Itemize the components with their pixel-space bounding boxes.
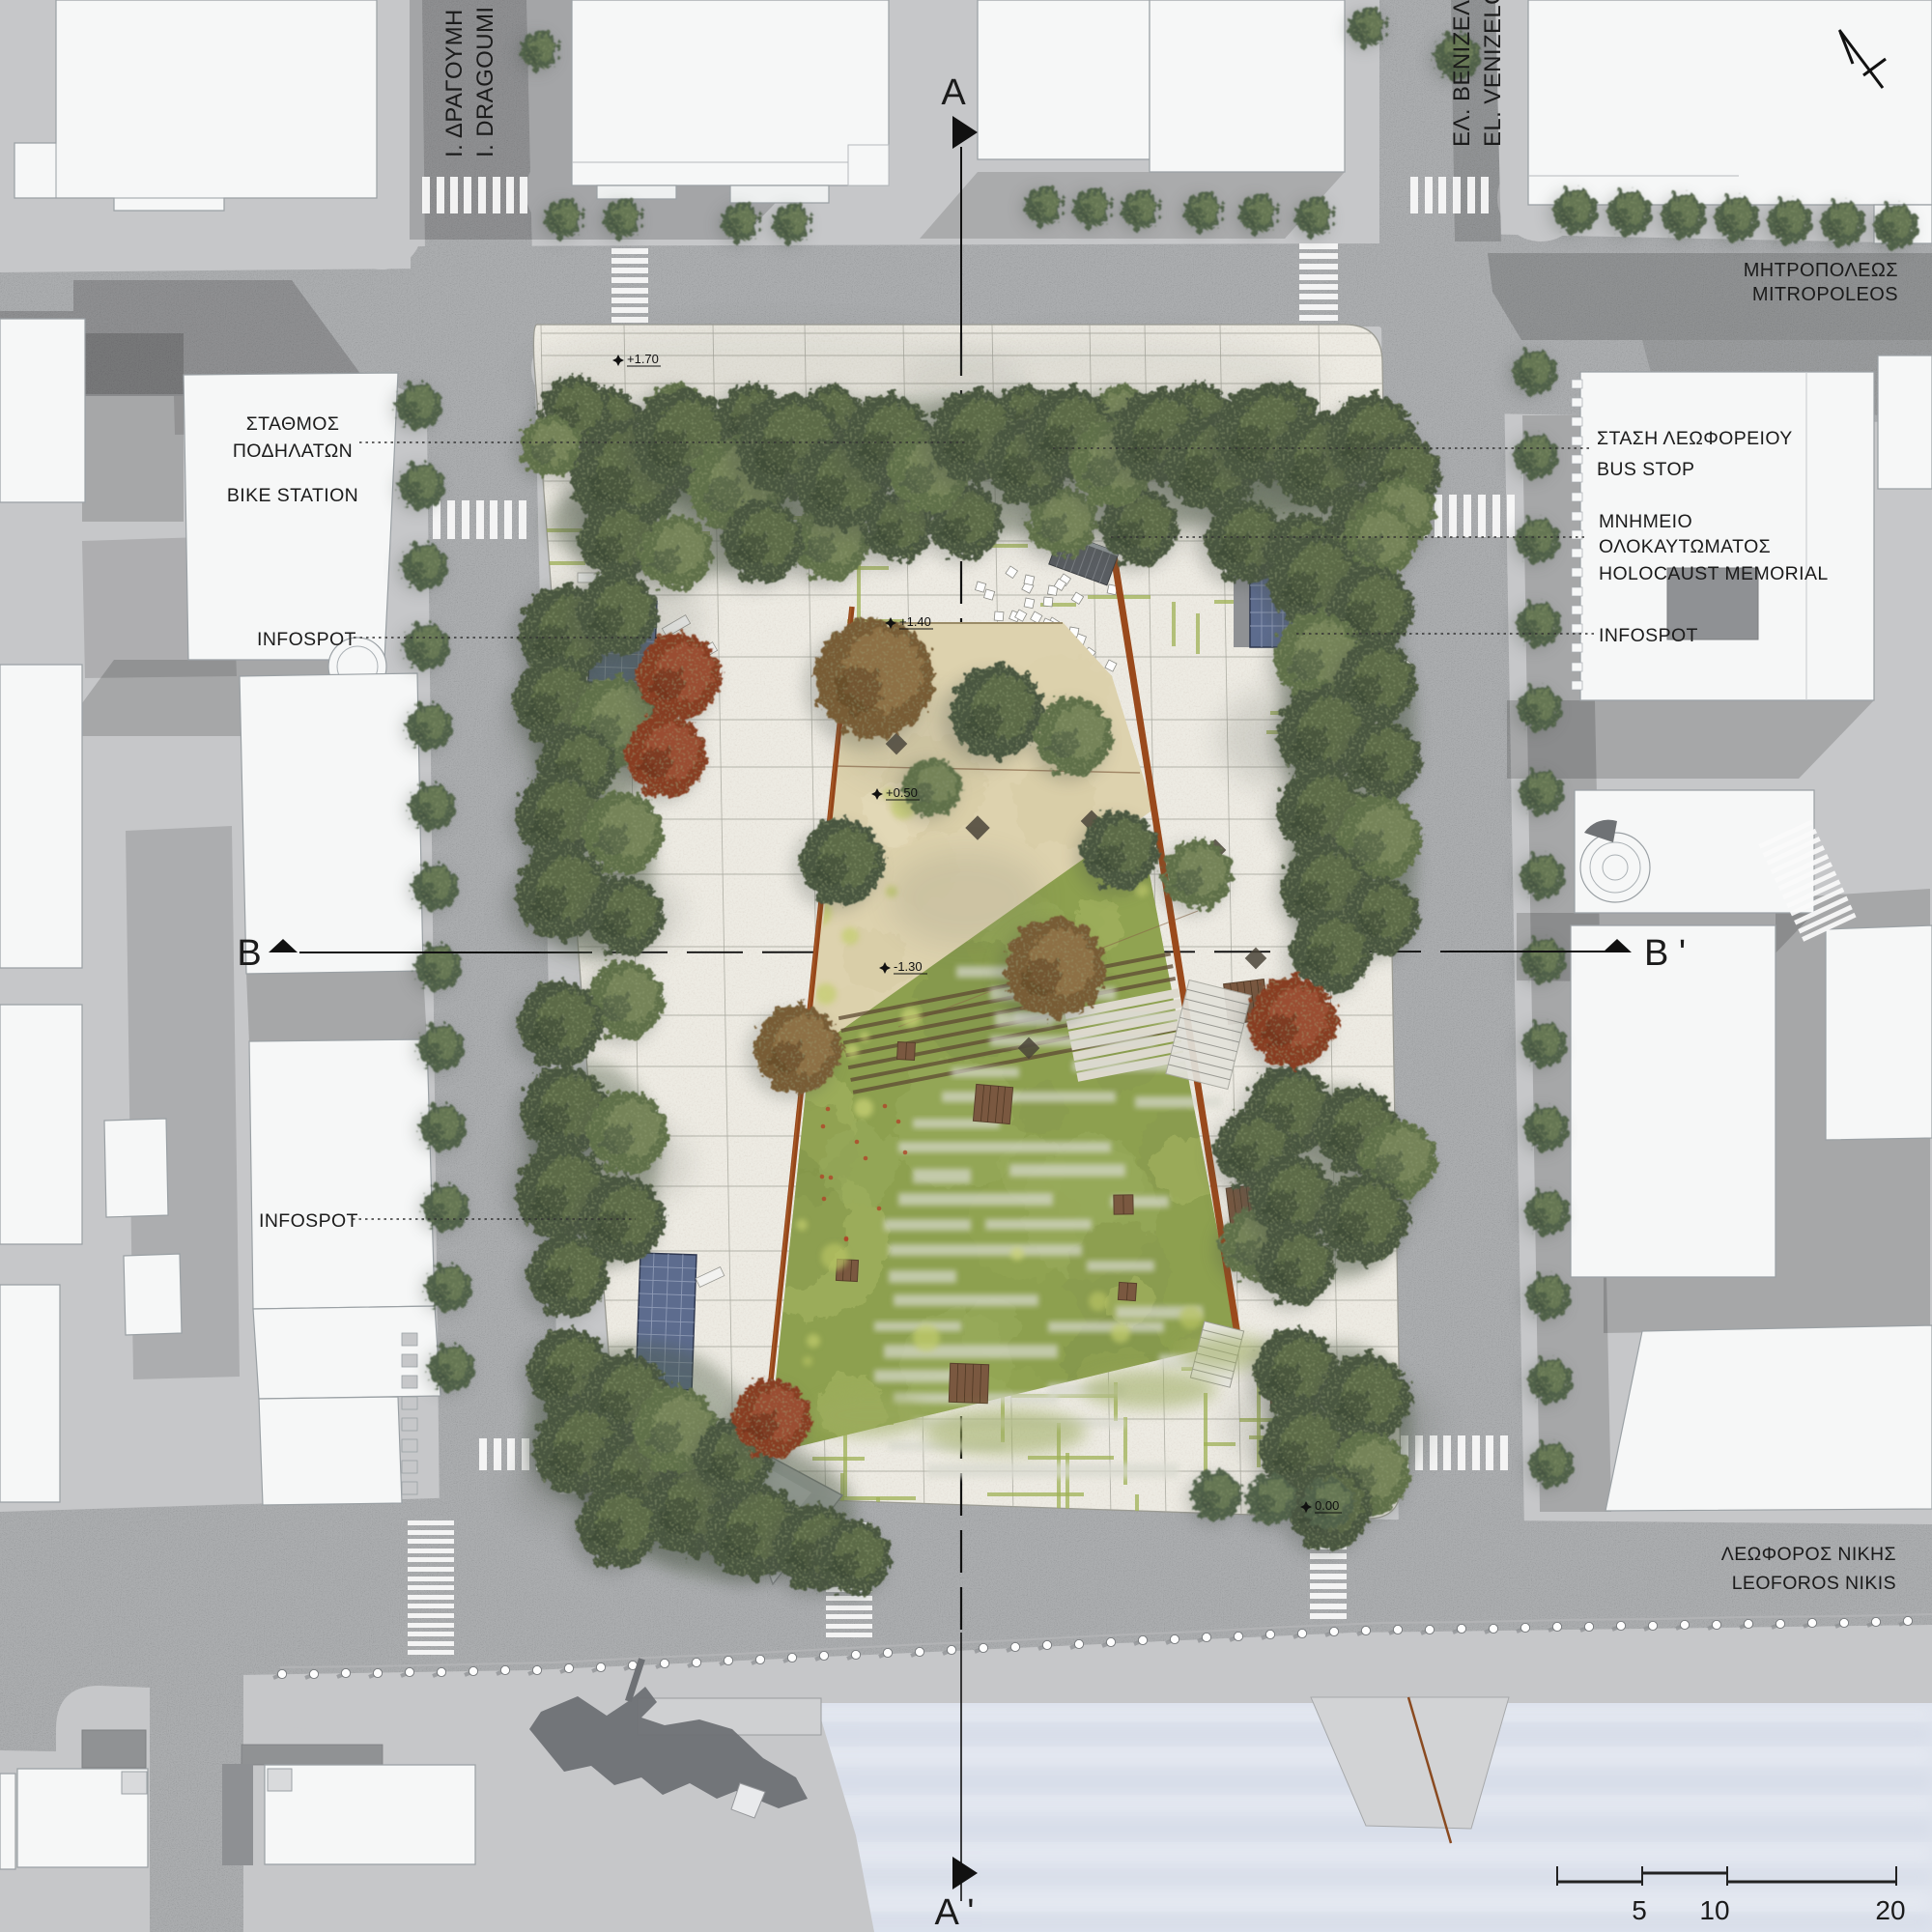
- svg-text:ΕΛ. ΒΕΝΙΖΕΛΟΥ: ΕΛ. ΒΕΝΙΖΕΛΟΥ: [1449, 0, 1475, 147]
- svg-text:ΟΛΟΚΑΥΤΩΜΑΤΟΣ: ΟΛΟΚΑΥΤΩΜΑΤΟΣ: [1599, 536, 1771, 557]
- svg-text:+0.50: +0.50: [886, 785, 918, 800]
- svg-text:ΜΗΤΡΟΠΟΛΕΩΣ: ΜΗΤΡΟΠΟΛΕΩΣ: [1744, 260, 1898, 281]
- svg-text:ΣΤΑΣΗ ΛΕΩΦΟΡΕΙΟΥ: ΣΤΑΣΗ ΛΕΩΦΟΡΕΙΟΥ: [1597, 428, 1793, 449]
- svg-text:BUS STOP: BUS STOP: [1597, 459, 1694, 480]
- svg-text:HOLOCAUST MEMORIAL: HOLOCAUST MEMORIAL: [1599, 563, 1829, 584]
- svg-text:EL. VENIZELOU: EL. VENIZELOU: [1480, 0, 1506, 147]
- svg-text:I. DRAGOUMI: I. DRAGOUMI: [472, 7, 498, 157]
- svg-text:BIKE STATION: BIKE STATION: [227, 485, 358, 506]
- svg-text:20: 20: [1875, 1895, 1905, 1925]
- svg-text:INFOSPOT: INFOSPOT: [257, 629, 356, 650]
- svg-text:ΠΟΔΗΛΑΤΩΝ: ΠΟΔΗΛΑΤΩΝ: [233, 440, 353, 462]
- svg-text:B ': B ': [1644, 933, 1686, 974]
- svg-text:A: A: [941, 72, 966, 113]
- svg-text:LEOFOROS NIKIS: LEOFOROS NIKIS: [1732, 1573, 1896, 1594]
- svg-text:Ι. ΔΡΑΓΟΥΜΗ: Ι. ΔΡΑΓΟΥΜΗ: [441, 9, 468, 157]
- svg-text:+1.40: +1.40: [899, 614, 931, 629]
- svg-text:B: B: [237, 933, 261, 974]
- svg-text:INFOSPOT: INFOSPOT: [1599, 625, 1698, 646]
- svg-text:A ': A ': [934, 1892, 974, 1932]
- svg-text:ΣΤΑΘΜΟΣ: ΣΤΑΘΜΟΣ: [246, 413, 340, 435]
- svg-text:ΜΝΗΜΕΙΟ: ΜΝΗΜΕΙΟ: [1599, 511, 1692, 532]
- svg-text:-1.30: -1.30: [894, 959, 923, 974]
- svg-text:0.00: 0.00: [1315, 1498, 1339, 1513]
- svg-text:5: 5: [1632, 1895, 1647, 1925]
- svg-text:ΛΕΩΦΟΡΟΣ ΝΙΚΗΣ: ΛΕΩΦΟΡΟΣ ΝΙΚΗΣ: [1721, 1544, 1896, 1565]
- svg-text:+1.70: +1.70: [627, 352, 659, 366]
- svg-text:MITROPOLEOS: MITROPOLEOS: [1752, 284, 1898, 305]
- svg-text:10: 10: [1699, 1895, 1729, 1925]
- svg-text:INFOSPOT: INFOSPOT: [259, 1210, 358, 1232]
